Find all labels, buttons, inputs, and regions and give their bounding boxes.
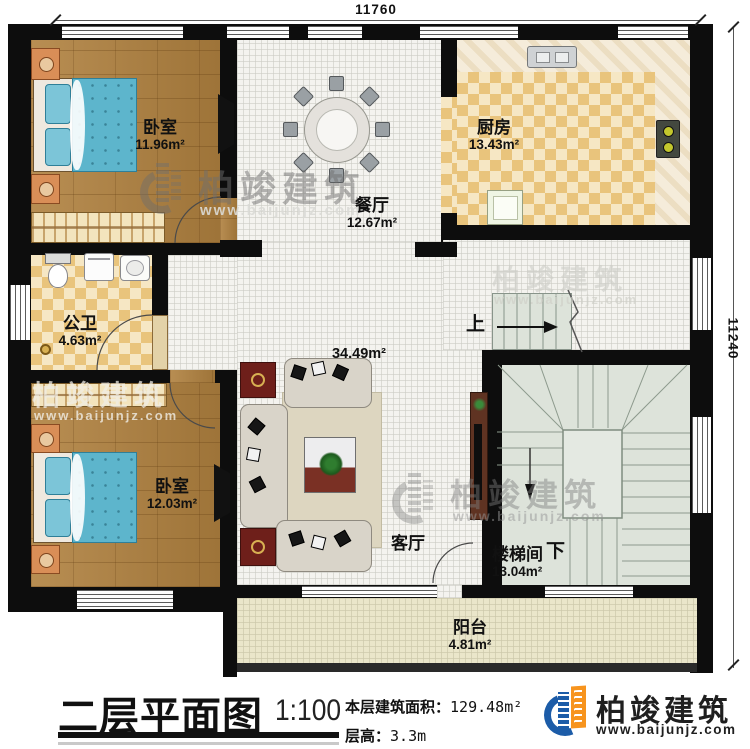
brand-logo-building-orange bbox=[571, 685, 586, 728]
floor-plan-page: 柏竣建筑 www.baijunjz.com 柏竣建筑 www.baijunjz.… bbox=[0, 0, 750, 749]
brand-website: www.baijunjz.com bbox=[596, 722, 737, 737]
dimension-top-value: 11760 bbox=[340, 2, 412, 17]
dimension-right-value: 11240 bbox=[726, 309, 741, 369]
brand-logo bbox=[546, 684, 590, 742]
balcony-door-arc bbox=[433, 543, 473, 583]
floor-area-value: 129.48m² bbox=[450, 698, 522, 716]
bathroom-label: 公卫 4.63m² bbox=[59, 314, 102, 348]
floor-height-value: 3.3m bbox=[390, 727, 426, 745]
watermark-url: www.baijunjz.com bbox=[34, 408, 178, 423]
floor-area-row: 本层建筑面积：129.48m² bbox=[345, 696, 522, 717]
living-name-label: 客厅 bbox=[391, 534, 425, 553]
title-underline bbox=[58, 732, 339, 738]
watermark-url: www.baijunjz.com bbox=[494, 292, 638, 307]
brand-logo-building-blue bbox=[558, 692, 569, 730]
floor-height-row: 层高：3.3m bbox=[345, 725, 426, 746]
watermark-logo bbox=[140, 158, 194, 228]
dimension-line-top bbox=[55, 20, 701, 21]
bedroom2-label: 卧室 12.03m² bbox=[147, 477, 197, 511]
living-area-label: 34.49m² bbox=[332, 346, 386, 362]
stairwell-label: 楼梯间 下 13.04m² bbox=[492, 546, 565, 580]
floor-height-label: 层高： bbox=[345, 728, 390, 745]
bathroom-door-arc bbox=[97, 315, 152, 370]
watermark-logo bbox=[392, 468, 442, 530]
brand-logo-windows bbox=[574, 690, 582, 723]
dining-label: 餐厅 12.67m² bbox=[347, 196, 397, 230]
watermark-url: www.baijunjz.com bbox=[200, 202, 361, 219]
stair-up-label: 上 bbox=[466, 309, 485, 336]
kitchen-label: 厨房 13.43m² bbox=[469, 118, 519, 152]
balcony-label: 阳台 4.81m² bbox=[449, 618, 492, 652]
floor-area-label: 本层建筑面积： bbox=[345, 699, 450, 716]
plan-scale: 1:100 bbox=[275, 694, 341, 728]
bedroom1-label: 卧室 11.96m² bbox=[135, 118, 185, 152]
watermark-url: www.baijunjz.com bbox=[453, 508, 606, 524]
stair-up-arrow bbox=[497, 321, 558, 333]
title-underline-light bbox=[58, 742, 339, 745]
